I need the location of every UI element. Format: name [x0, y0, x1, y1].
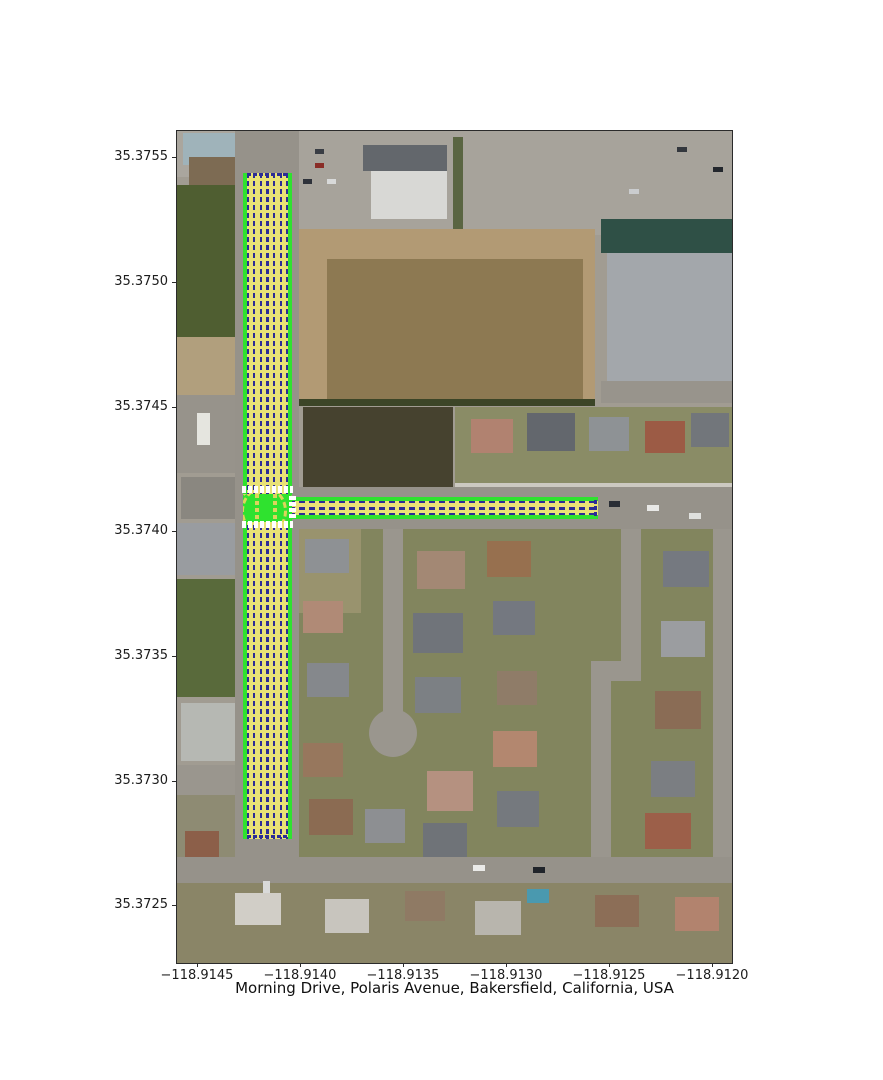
house	[177, 523, 237, 575]
stopline-east	[594, 500, 597, 516]
y-tick-mark	[172, 905, 176, 906]
through-path	[273, 494, 277, 522]
y-tick-label: 35.3725	[106, 897, 168, 912]
x-tick-mark	[506, 963, 507, 967]
car	[609, 501, 620, 507]
stopline-top	[247, 173, 288, 176]
house	[309, 799, 353, 835]
cul-de-sac	[369, 709, 417, 757]
house	[475, 901, 521, 935]
car	[263, 881, 270, 893]
y-tick-mark	[172, 656, 176, 657]
crosswalk-south	[242, 521, 293, 528]
house	[493, 601, 535, 635]
house	[307, 663, 349, 697]
road-bottom	[177, 857, 732, 883]
y-tick-mark	[172, 781, 176, 782]
house	[589, 417, 629, 451]
house	[471, 419, 513, 453]
car	[473, 865, 485, 871]
car	[303, 179, 312, 184]
x-tick-mark	[712, 963, 713, 967]
plot-title: Morning Drive, Polaris Avenue, Bakersfie…	[176, 979, 733, 997]
lane-line	[289, 507, 598, 510]
house	[325, 899, 369, 933]
street	[177, 765, 241, 795]
polaris-avenue-overlay-lanes	[289, 501, 598, 515]
car	[315, 163, 324, 168]
street-court	[383, 529, 403, 721]
house	[691, 413, 729, 447]
plowed-field	[327, 259, 583, 401]
street-loop	[591, 661, 641, 681]
store-white-roof	[371, 171, 447, 219]
house	[413, 613, 463, 653]
y-tick-mark	[172, 531, 176, 532]
car	[689, 513, 701, 519]
house	[663, 551, 709, 587]
car	[677, 147, 687, 152]
matplotlib-figure: −118.9145−118.9140−118.9135−118.9130−118…	[0, 0, 883, 1080]
house	[365, 809, 405, 843]
plot-area	[176, 130, 733, 964]
car	[327, 179, 336, 184]
stopline-bottom	[247, 835, 288, 838]
lane-line	[289, 501, 598, 503]
street	[601, 381, 732, 403]
house	[415, 677, 461, 713]
trees	[453, 137, 463, 231]
turn-path-arc	[243, 494, 287, 522]
car	[533, 867, 545, 873]
tree-line	[299, 399, 595, 406]
house	[595, 895, 639, 927]
x-tick-mark	[403, 963, 404, 967]
car	[629, 189, 639, 194]
dirt-lot-left	[177, 337, 241, 395]
crosswalk-west	[289, 496, 296, 520]
house	[651, 761, 695, 797]
y-tick-label: 35.3755	[106, 149, 168, 164]
polaris-avenue-overlay	[289, 497, 598, 519]
car	[647, 505, 659, 511]
y-tick-label: 35.3730	[106, 773, 168, 788]
car	[713, 167, 723, 172]
house	[675, 897, 719, 931]
house	[497, 671, 537, 705]
x-tick-mark	[609, 963, 610, 967]
house	[645, 813, 691, 849]
house	[303, 601, 343, 633]
crosswalk-north	[242, 486, 293, 493]
car	[315, 149, 324, 154]
y-tick-mark	[172, 157, 176, 158]
house	[417, 551, 465, 589]
y-tick-mark	[172, 407, 176, 408]
x-tick-mark	[197, 963, 198, 967]
house	[423, 823, 467, 857]
house	[497, 791, 539, 827]
teal-building	[601, 219, 732, 253]
y-tick-mark	[172, 282, 176, 283]
field-dark-green	[177, 185, 241, 337]
house	[493, 731, 537, 767]
y-tick-label: 35.3740	[106, 523, 168, 538]
x-tick-mark	[300, 963, 301, 967]
lane-line	[289, 513, 598, 515]
store-dark-roof	[363, 145, 447, 171]
y-tick-label: 35.3735	[106, 648, 168, 663]
house	[303, 743, 343, 777]
street-loop	[621, 529, 641, 679]
y-tick-label: 35.3745	[106, 399, 168, 414]
house	[487, 541, 531, 577]
house	[181, 477, 235, 519]
house	[405, 891, 445, 921]
field-green	[177, 579, 241, 697]
house	[645, 421, 685, 453]
trailer	[197, 413, 210, 445]
house	[305, 539, 349, 573]
house	[181, 703, 237, 761]
dark-field	[303, 407, 453, 489]
y-tick-label: 35.3750	[106, 274, 168, 289]
street-right	[713, 529, 732, 857]
house	[427, 771, 473, 811]
house	[655, 691, 701, 729]
through-path	[255, 494, 259, 522]
industrial-building	[607, 253, 732, 381]
junction-markings	[243, 494, 292, 522]
house	[661, 621, 705, 657]
pool-tarp	[527, 889, 549, 903]
house	[527, 413, 575, 451]
house	[235, 893, 281, 925]
street-loop	[591, 679, 611, 857]
